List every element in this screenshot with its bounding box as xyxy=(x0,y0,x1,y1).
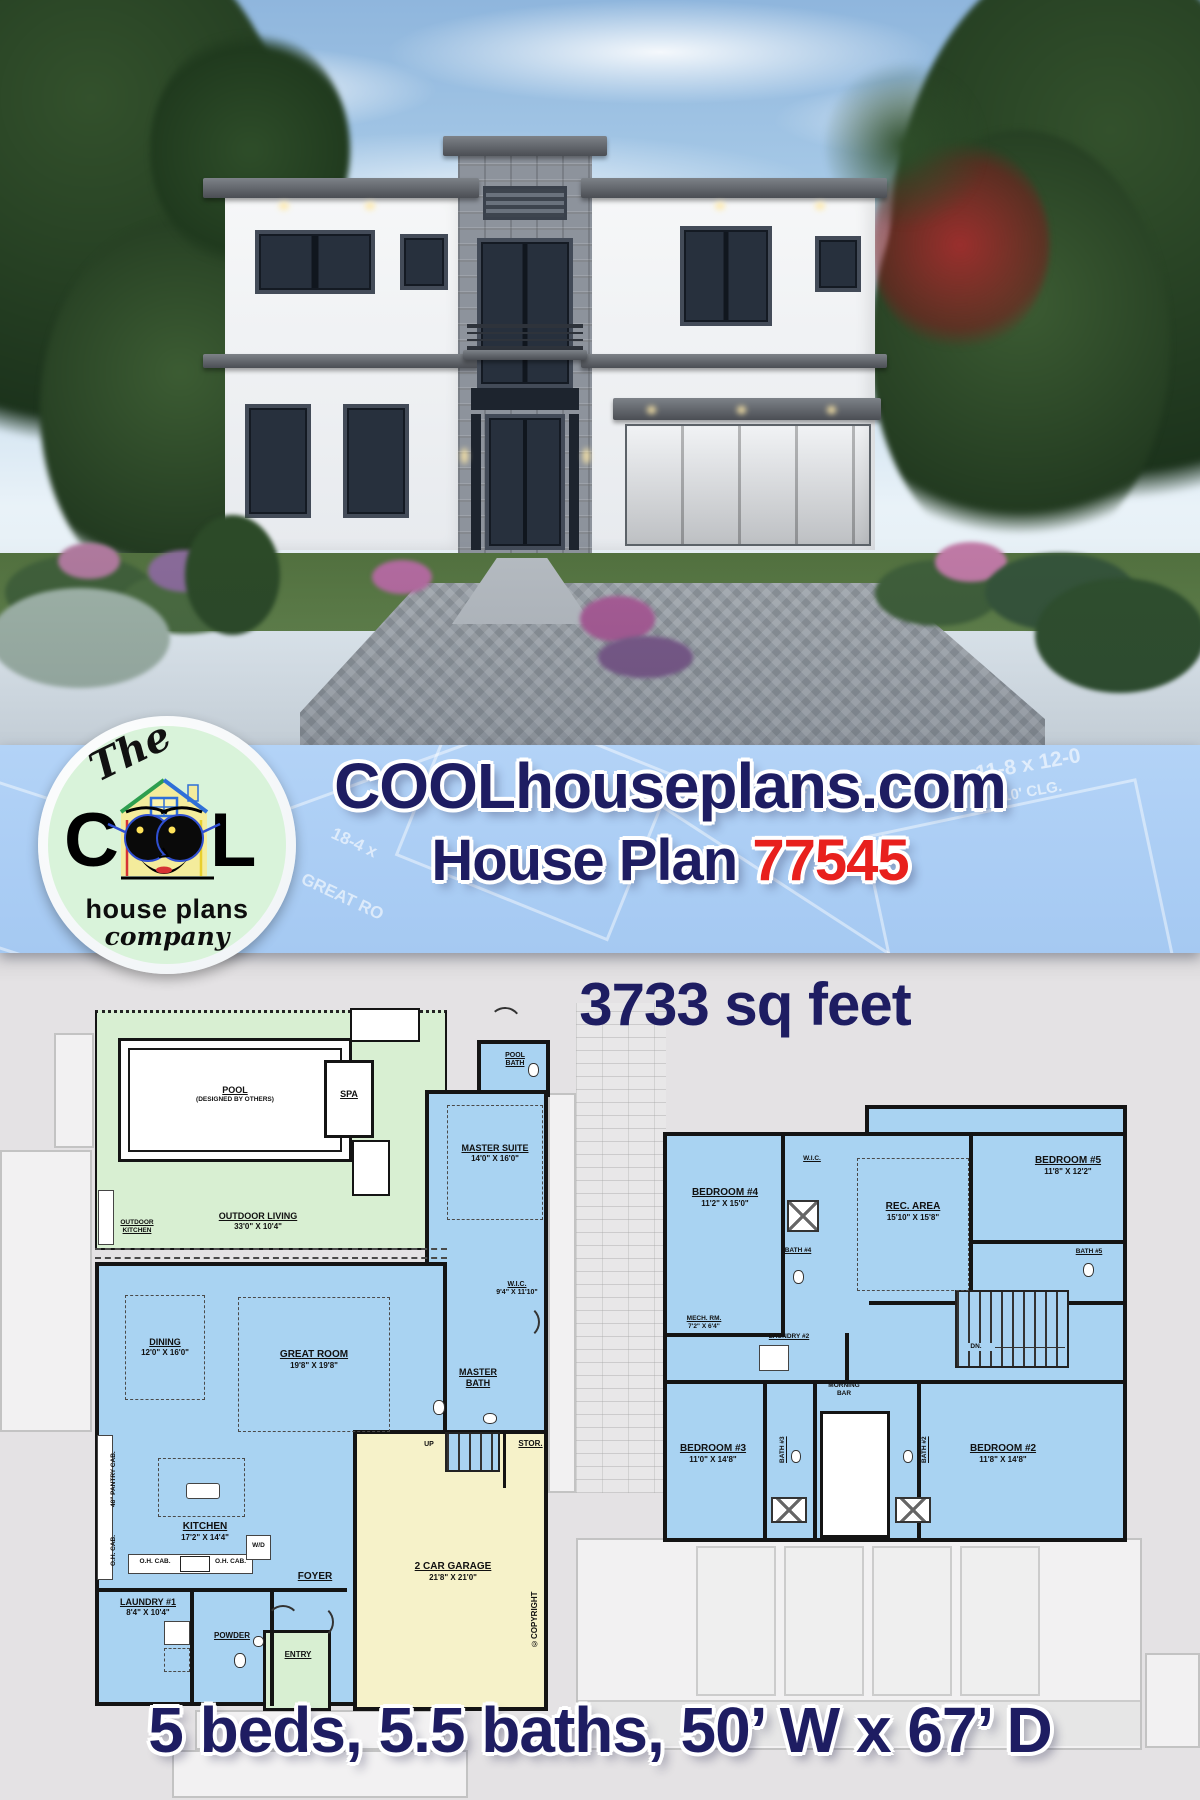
elevation-sketch-brick xyxy=(576,1003,666,1493)
room-label-entry: ENTRY xyxy=(268,1650,328,1659)
room-label-bath4: BATH #4 xyxy=(768,1247,828,1255)
label-up: UP xyxy=(414,1441,444,1449)
room-label-spa: SPA xyxy=(324,1089,374,1100)
stairs-up xyxy=(445,1432,500,1472)
sunglasses-right-lens xyxy=(157,815,203,861)
cool-house-mascot: C L ® xyxy=(64,778,268,890)
plan-title: House Plan 77545 xyxy=(280,831,1060,892)
room-label-dining: DINING 12'0" X 16'0" xyxy=(125,1337,205,1357)
room-label-rec-area: REC. AREA 15'10" X 15'8" xyxy=(857,1201,969,1222)
room-label-master-bath: MASTER BATH xyxy=(443,1367,513,1388)
room-label-mech: MECH. RM. 7'2" X 6'4" xyxy=(665,1315,743,1330)
elevation-sketch-middle xyxy=(548,1093,576,1493)
logo-letter-l: L xyxy=(210,798,256,883)
room-label-pool: POOL (DESIGNED BY OTHERS) xyxy=(165,1085,305,1103)
room-label-bath5: BATH #5 xyxy=(1059,1248,1119,1256)
room-label-bedroom2: BEDROOM #2 11'8" X 14'8" xyxy=(925,1443,1081,1464)
plan-number: 77545 xyxy=(752,828,908,893)
floor-plan-first: POOL (DESIGNED BY OTHERS) SPA OUTDOOR LI… xyxy=(88,1005,550,1711)
copyright-label: ©COPYRIGHT xyxy=(530,1565,539,1675)
logo-inner-disk: C L ® The house plans company xyxy=(48,726,286,964)
sqft-heading: 3733 sq feet xyxy=(460,973,1030,1036)
house-photo xyxy=(0,0,1200,745)
label-wd: W/D xyxy=(246,1542,271,1550)
room-label-wic: W.I.C. 9'4" X 11'10" xyxy=(482,1281,552,1298)
room-label-stor: STOR. xyxy=(503,1439,558,1448)
room-label-outdoor-living: OUTDOOR LIVING 33'0" X 10'4" xyxy=(178,1211,338,1231)
label-oh-cab: O.H. CAB. xyxy=(208,1558,253,1566)
room-label-pool-bath: POOL BATH xyxy=(486,1052,544,1069)
logo-company: company xyxy=(48,922,286,951)
label-oh-cab: O.H. CAB. xyxy=(130,1558,180,1566)
logo-house-plans: house plans xyxy=(48,894,286,925)
site-title: COOLhouseplans.com xyxy=(280,753,1060,820)
logo-letter-c: C xyxy=(64,798,119,883)
label-pantry-cab: 48" PANTRY CAB. xyxy=(110,1437,118,1521)
room-label-laundry2: LAUNDRY #2 xyxy=(749,1333,829,1341)
house-plan-pin: 11-8 x 12-0 10' CLG. 18-4 x HT. GREAT RO… xyxy=(0,0,1200,1800)
pool-bath xyxy=(477,1040,550,1097)
room-label-master-suite: MASTER SUITE 14'0" X 16'0" xyxy=(446,1143,544,1163)
room-label-garage: 2 CAR GARAGE 21'8" X 21'0" xyxy=(368,1561,538,1582)
registered-mark: ® xyxy=(216,852,226,867)
room-label-bedroom5: BEDROOM #5 11'8" X 12'2" xyxy=(1003,1155,1133,1176)
plan-title-prefix: House Plan xyxy=(431,828,737,893)
floor-plan-section: 3733 sq feet POOL (DESIGNED BY OTHERS) S… xyxy=(0,953,1200,1800)
room-label-great-room: GREAT ROOM 19'8" X 19'8" xyxy=(238,1349,390,1370)
specs-footer: 5 beds, 5.5 baths, 50’ W x 67’ D xyxy=(0,1693,1200,1767)
logo-badge: C L ® The house plans company xyxy=(38,716,296,974)
elevation-sketch-left xyxy=(0,1150,92,1432)
label-dn: DN. xyxy=(959,1343,993,1351)
room-label-foyer: FOYER xyxy=(280,1571,350,1583)
room-label-laundry1: LAUNDRY #1 8'4" X 10'4" xyxy=(104,1597,192,1617)
room-label-bedroom4: BEDROOM #4 11'2" X 15'0" xyxy=(663,1187,787,1208)
label-oh-cab-vert: O.H. CAB. xyxy=(110,1525,118,1575)
stair-bay xyxy=(820,1411,890,1538)
room-label-bath3: BATH #3 xyxy=(779,1420,787,1480)
room-label-powder: POWDER xyxy=(192,1631,272,1640)
room-label-wic2: W.I.C. xyxy=(787,1155,837,1163)
room-label-outdoor-kitchen: OUTDOOR KITCHEN xyxy=(106,1219,168,1234)
pool-steps xyxy=(352,1140,390,1196)
stairs-down xyxy=(955,1290,1069,1368)
floor-plan-second: BEDROOM #4 11'2" X 15'0" W.I.C. BATH #4 … xyxy=(663,1105,1127,1542)
room-label-kitchen: KITCHEN 17'2" X 14'4" xyxy=(155,1521,255,1542)
room-label-bedroom3: BEDROOM #3 11'0" X 14'8" xyxy=(663,1443,763,1464)
room-label-morning-bar: MORNING BAR xyxy=(815,1382,873,1397)
equipment-pad xyxy=(350,1008,420,1042)
